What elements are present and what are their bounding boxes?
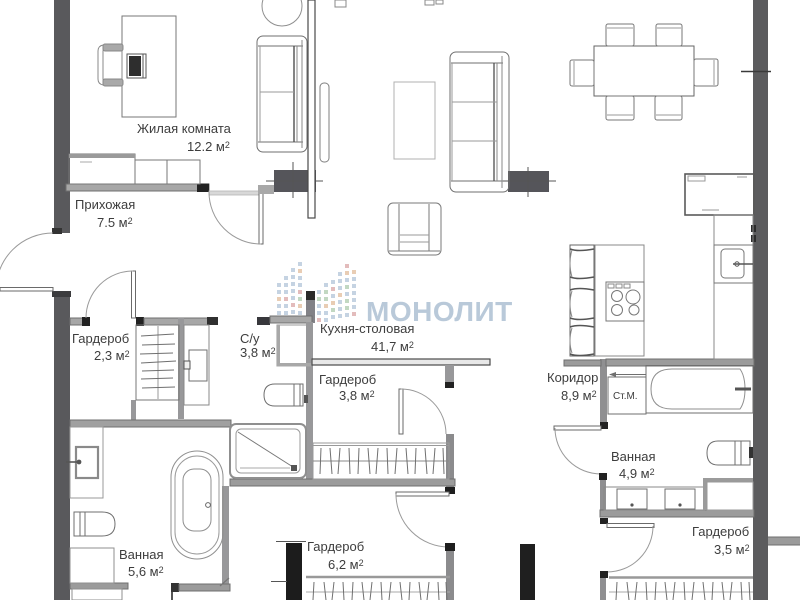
svg-text:12.2 м2: 12.2 м2 xyxy=(187,139,230,154)
svg-text:Прихожая: Прихожая xyxy=(75,197,135,212)
svg-text:Гардероб: Гардероб xyxy=(319,372,376,387)
svg-text:5,6 м2: 5,6 м2 xyxy=(128,564,164,579)
svg-text:м: м xyxy=(188,596,197,600)
svg-text:2,3 м2: 2,3 м2 xyxy=(94,348,130,363)
svg-text:С/у: С/у xyxy=(240,331,260,346)
svg-text:Гардероб: Гардероб xyxy=(692,524,749,539)
svg-text:Жилая комната: Жилая комната xyxy=(137,121,232,136)
svg-text:Ст.М.: Ст.М. xyxy=(613,391,638,402)
svg-text:Гардероб: Гардероб xyxy=(307,539,364,554)
svg-text:Кухня-столовая: Кухня-столовая xyxy=(320,321,414,336)
svg-text:7.5 м2: 7.5 м2 xyxy=(97,215,133,230)
svg-text:Коридор: Коридор xyxy=(547,370,598,385)
svg-text:3,8 м2: 3,8 м2 xyxy=(339,388,375,403)
svg-text:4,9 м2: 4,9 м2 xyxy=(619,466,655,481)
svg-text:Гардероб: Гардероб xyxy=(72,331,129,346)
svg-text:Ванная: Ванная xyxy=(119,547,164,562)
svg-text:8,9 м2: 8,9 м2 xyxy=(561,388,597,403)
svg-text:Ванная: Ванная xyxy=(611,449,656,464)
svg-text:3,8 м2: 3,8 м2 xyxy=(240,345,276,360)
svg-text:6,2 м2: 6,2 м2 xyxy=(328,557,364,572)
svg-text:41,7 м2: 41,7 м2 xyxy=(371,339,414,354)
svg-text:3,5 м2: 3,5 м2 xyxy=(714,542,750,557)
